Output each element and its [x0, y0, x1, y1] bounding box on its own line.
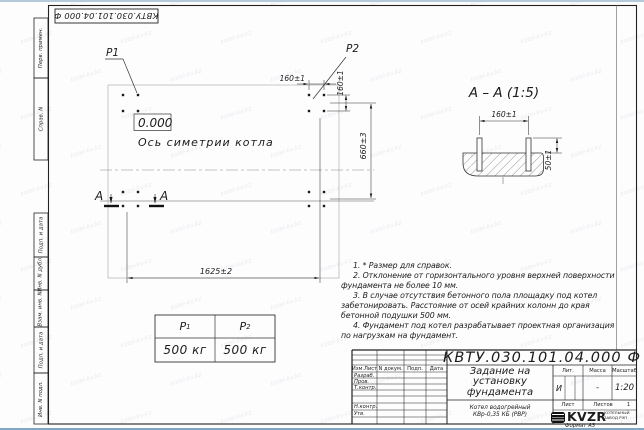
tb-header-n-dokum: N докум. — [377, 365, 404, 372]
tb-scale-value: 1:20 — [612, 376, 637, 400]
tb-scale-label: Масштаб — [612, 366, 637, 375]
section-view-title: А – А (1:5) — [468, 85, 539, 101]
tb-mass-label: Масса — [583, 366, 612, 375]
tb-lit-label: Лит. — [553, 366, 583, 375]
dim-depth — [330, 103, 376, 199]
concrete-pad — [463, 153, 544, 176]
section-letter-right: А — [159, 189, 168, 203]
margin-cell-vzam-inv: Взам. инв. N — [34, 290, 48, 327]
dim-section-160: 160±1 — [491, 110, 516, 119]
note-4: 4. Фундамент под котел разрабатывает про… — [341, 321, 617, 341]
load-point-2-label: P2 — [346, 43, 359, 55]
tb-header-podp: Подп. — [404, 365, 426, 372]
section-cut-marks: А А — [94, 189, 168, 206]
margin-cell-sprav-n: Справ. N — [34, 78, 48, 160]
load-leaders — [105, 57, 346, 99]
tb-header-izm-list: Изм.Лист — [352, 365, 377, 372]
margin-cell-podp-data-1: Подп. и дата — [34, 213, 48, 257]
margin-cell-podp-data-2: Подп. и дата — [34, 327, 48, 373]
section-view: А – А (1:5) 160±1 50±1 — [463, 85, 562, 184]
load-p1-header: Р1 — [155, 315, 215, 338]
top-stamp-number: КВТУ.030.101.04.000 Ф — [54, 11, 158, 21]
plan-view: P1 P2 160±1 160±1 1625±2 — [94, 43, 376, 283]
dim-50: 50±1 — [544, 150, 553, 171]
tb-row-tkontr: Т.контр. — [352, 385, 376, 391]
kvzr-logo-mark — [551, 412, 565, 424]
dim-660: 660±3 — [359, 132, 368, 159]
margin-cell-inv-dubl: Инв. N дубл. — [34, 257, 48, 290]
drawing-sheet: kotel-kv.kzkotel-kv.kzkotel-kv.kzkotel-k… — [0, 0, 644, 430]
tb-sheets-value: 1 — [620, 400, 637, 410]
tb-lit-value: И — [553, 376, 565, 400]
tb-row-nkontr: Н.контр. — [352, 404, 377, 410]
title-block-doc-number: КВТУ.030.101.04.000 Ф — [447, 350, 637, 365]
margin-cell-inv-podl: Инв. N подл. — [34, 373, 48, 424]
top-stamp: КВТУ.030.101.04.000 Ф — [55, 9, 158, 23]
tb-mass-value: - — [583, 376, 612, 400]
anchor-bolts — [122, 94, 325, 207]
dim-160-horizontal: 160±1 — [280, 74, 305, 83]
title-block-product: Котел водогрейный КВр-0,35 КБ (РВР) — [447, 401, 553, 423]
sheet-edge-top — [0, 0, 644, 2]
anchor-bolt-left — [477, 138, 482, 171]
note-3: 3. В случае отсутствия бетонного пола пл… — [341, 291, 617, 321]
note-1: 1. * Размер для справок. — [341, 261, 617, 271]
note-2: 2. Отклонение от горизонтального уровня … — [341, 271, 617, 291]
symmetry-axis-label: Ось симетрии котла — [138, 136, 274, 149]
load-p2-header: Р2 — [215, 315, 275, 338]
load-p1-value: 500 кг — [155, 338, 215, 362]
margin-cell-perv-primen: Перв. примен. — [34, 18, 48, 78]
load-point-1-label: P1 — [106, 47, 119, 59]
load-p2-value: 500 кг — [215, 338, 275, 362]
technical-notes: 1. * Размер для справок. 2. Отклонение о… — [341, 261, 617, 341]
tb-row-utv: Утв. — [352, 411, 365, 417]
title-block-title: Задание на установку фундамента — [447, 366, 553, 399]
dim-160-vertical: 160±1 — [336, 70, 345, 95]
level-mark: 0.000 — [138, 116, 173, 130]
section-letter-left: А — [94, 189, 103, 203]
dim-1625: 1625±2 — [200, 267, 232, 276]
kvzr-logo-caption: КОТЕЛЬНЫЙ ЗАВОД РЭП — [604, 411, 637, 420]
tb-header-data: Дата — [426, 365, 447, 372]
anchor-bolt-right — [526, 138, 531, 171]
